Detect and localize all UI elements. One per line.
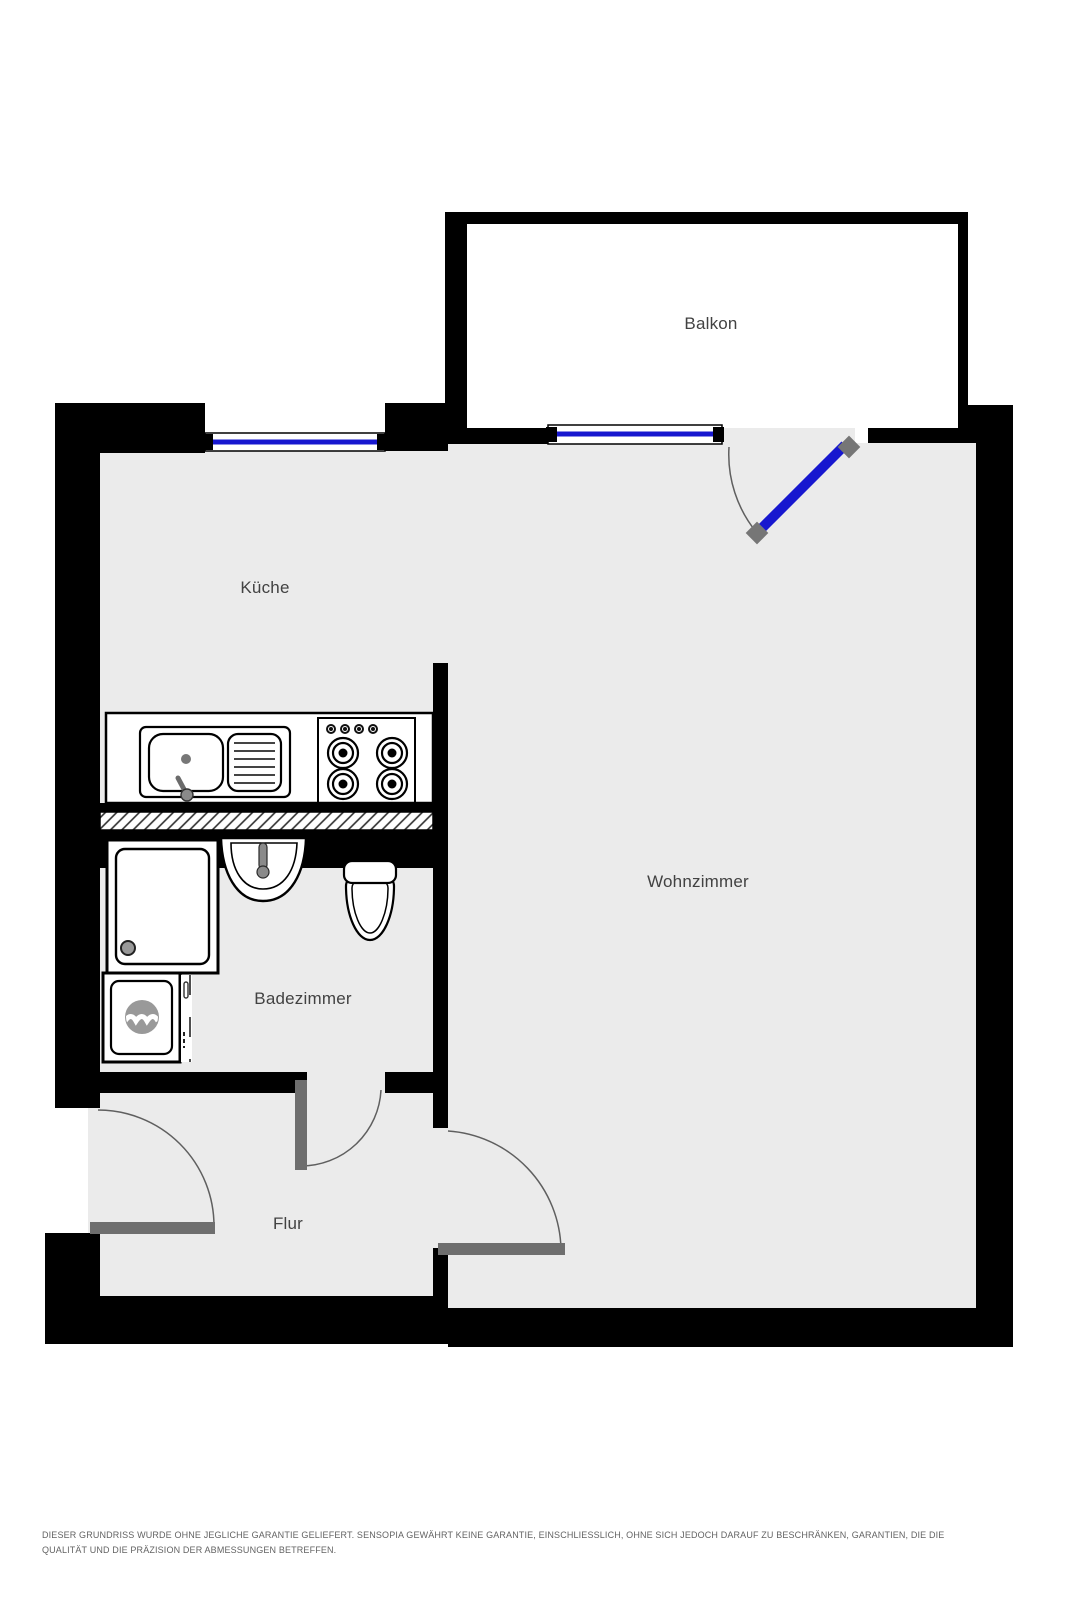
hatched-low-wall (100, 803, 433, 830)
kitchen-counter (106, 713, 433, 803)
room-label-kueche: Küche (240, 578, 289, 598)
room-label-balkon: Balkon (684, 314, 737, 334)
washing-machine-icon (103, 973, 180, 1062)
shower-icon (107, 840, 218, 973)
disclaimer-line-2: QUALITÄT UND DIE PRÄZISION DER ABMESSUNG… (42, 1543, 1042, 1558)
disclaimer-line-1: DIESER GRUNDRISS WURDE OHNE JEGLICHE GAR… (42, 1528, 1042, 1543)
living-room-window (546, 425, 724, 444)
room-label-wohnzimmer: Wohnzimmer (647, 872, 749, 892)
floor-plan-svg (0, 0, 1067, 1600)
room-label-badezimmer: Badezimmer (254, 989, 351, 1009)
room-label-flur: Flur (273, 1214, 303, 1234)
apartment-floor-plan: Balkon Küche Wohnzimmer Badezimmer Flur … (0, 0, 1067, 1600)
disclaimer: DIESER GRUNDRISS WURDE OHNE JEGLICHE GAR… (42, 1528, 1042, 1558)
kitchen-window (201, 433, 389, 451)
washer-niche-door (181, 975, 192, 1062)
